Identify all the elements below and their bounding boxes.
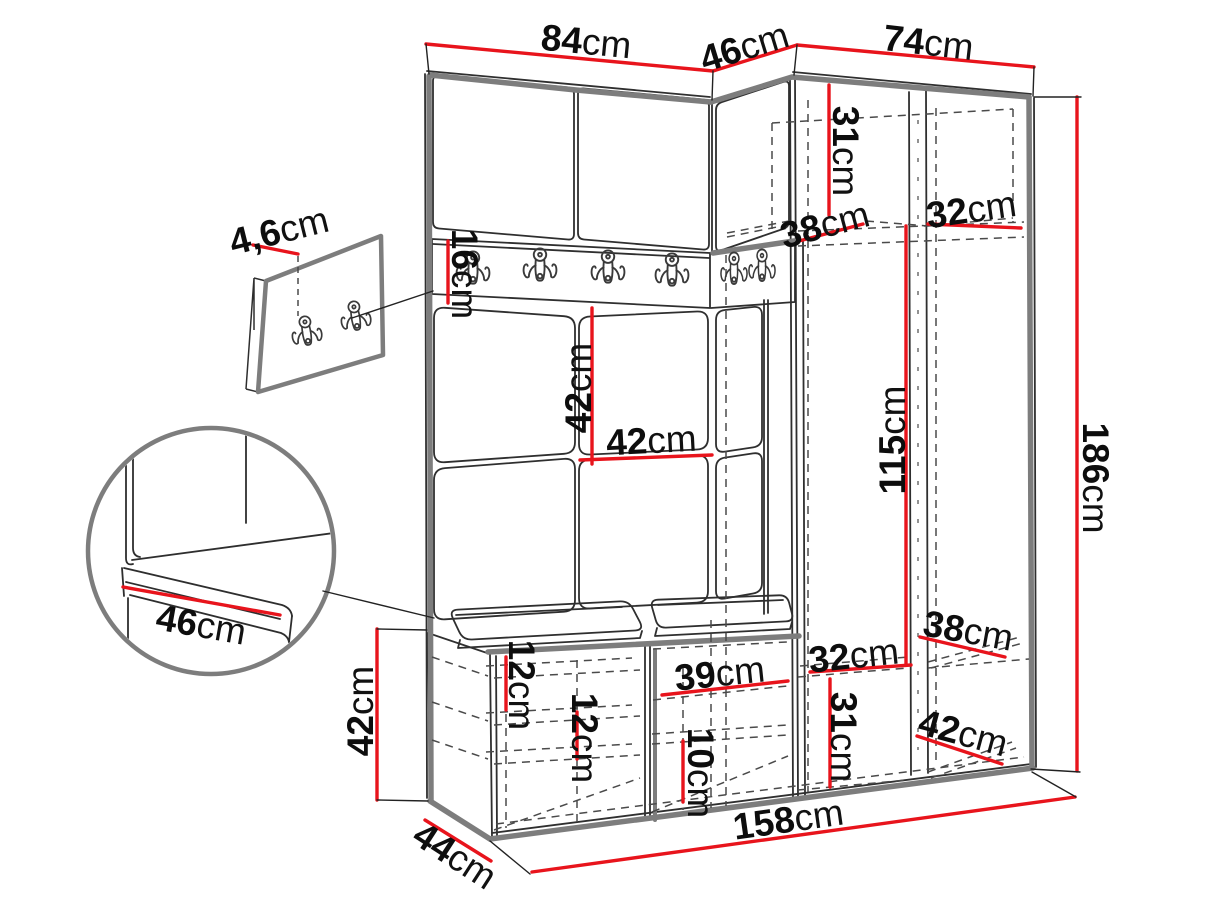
svg-text:31cm: 31cm [823,692,864,782]
svg-text:12cm: 12cm [564,693,605,783]
svg-text:16cm: 16cm [444,229,485,319]
svg-text:42cm: 42cm [558,343,599,433]
svg-text:186cm: 186cm [1075,422,1116,533]
svg-text:115cm: 115cm [872,385,913,494]
svg-text:84cm: 84cm [539,17,633,66]
svg-text:12cm: 12cm [501,640,542,730]
svg-text:42cm: 42cm [605,418,698,464]
svg-text:31cm: 31cm [825,106,866,196]
svg-text:42cm: 42cm [340,666,381,756]
svg-text:10cm: 10cm [680,728,721,818]
